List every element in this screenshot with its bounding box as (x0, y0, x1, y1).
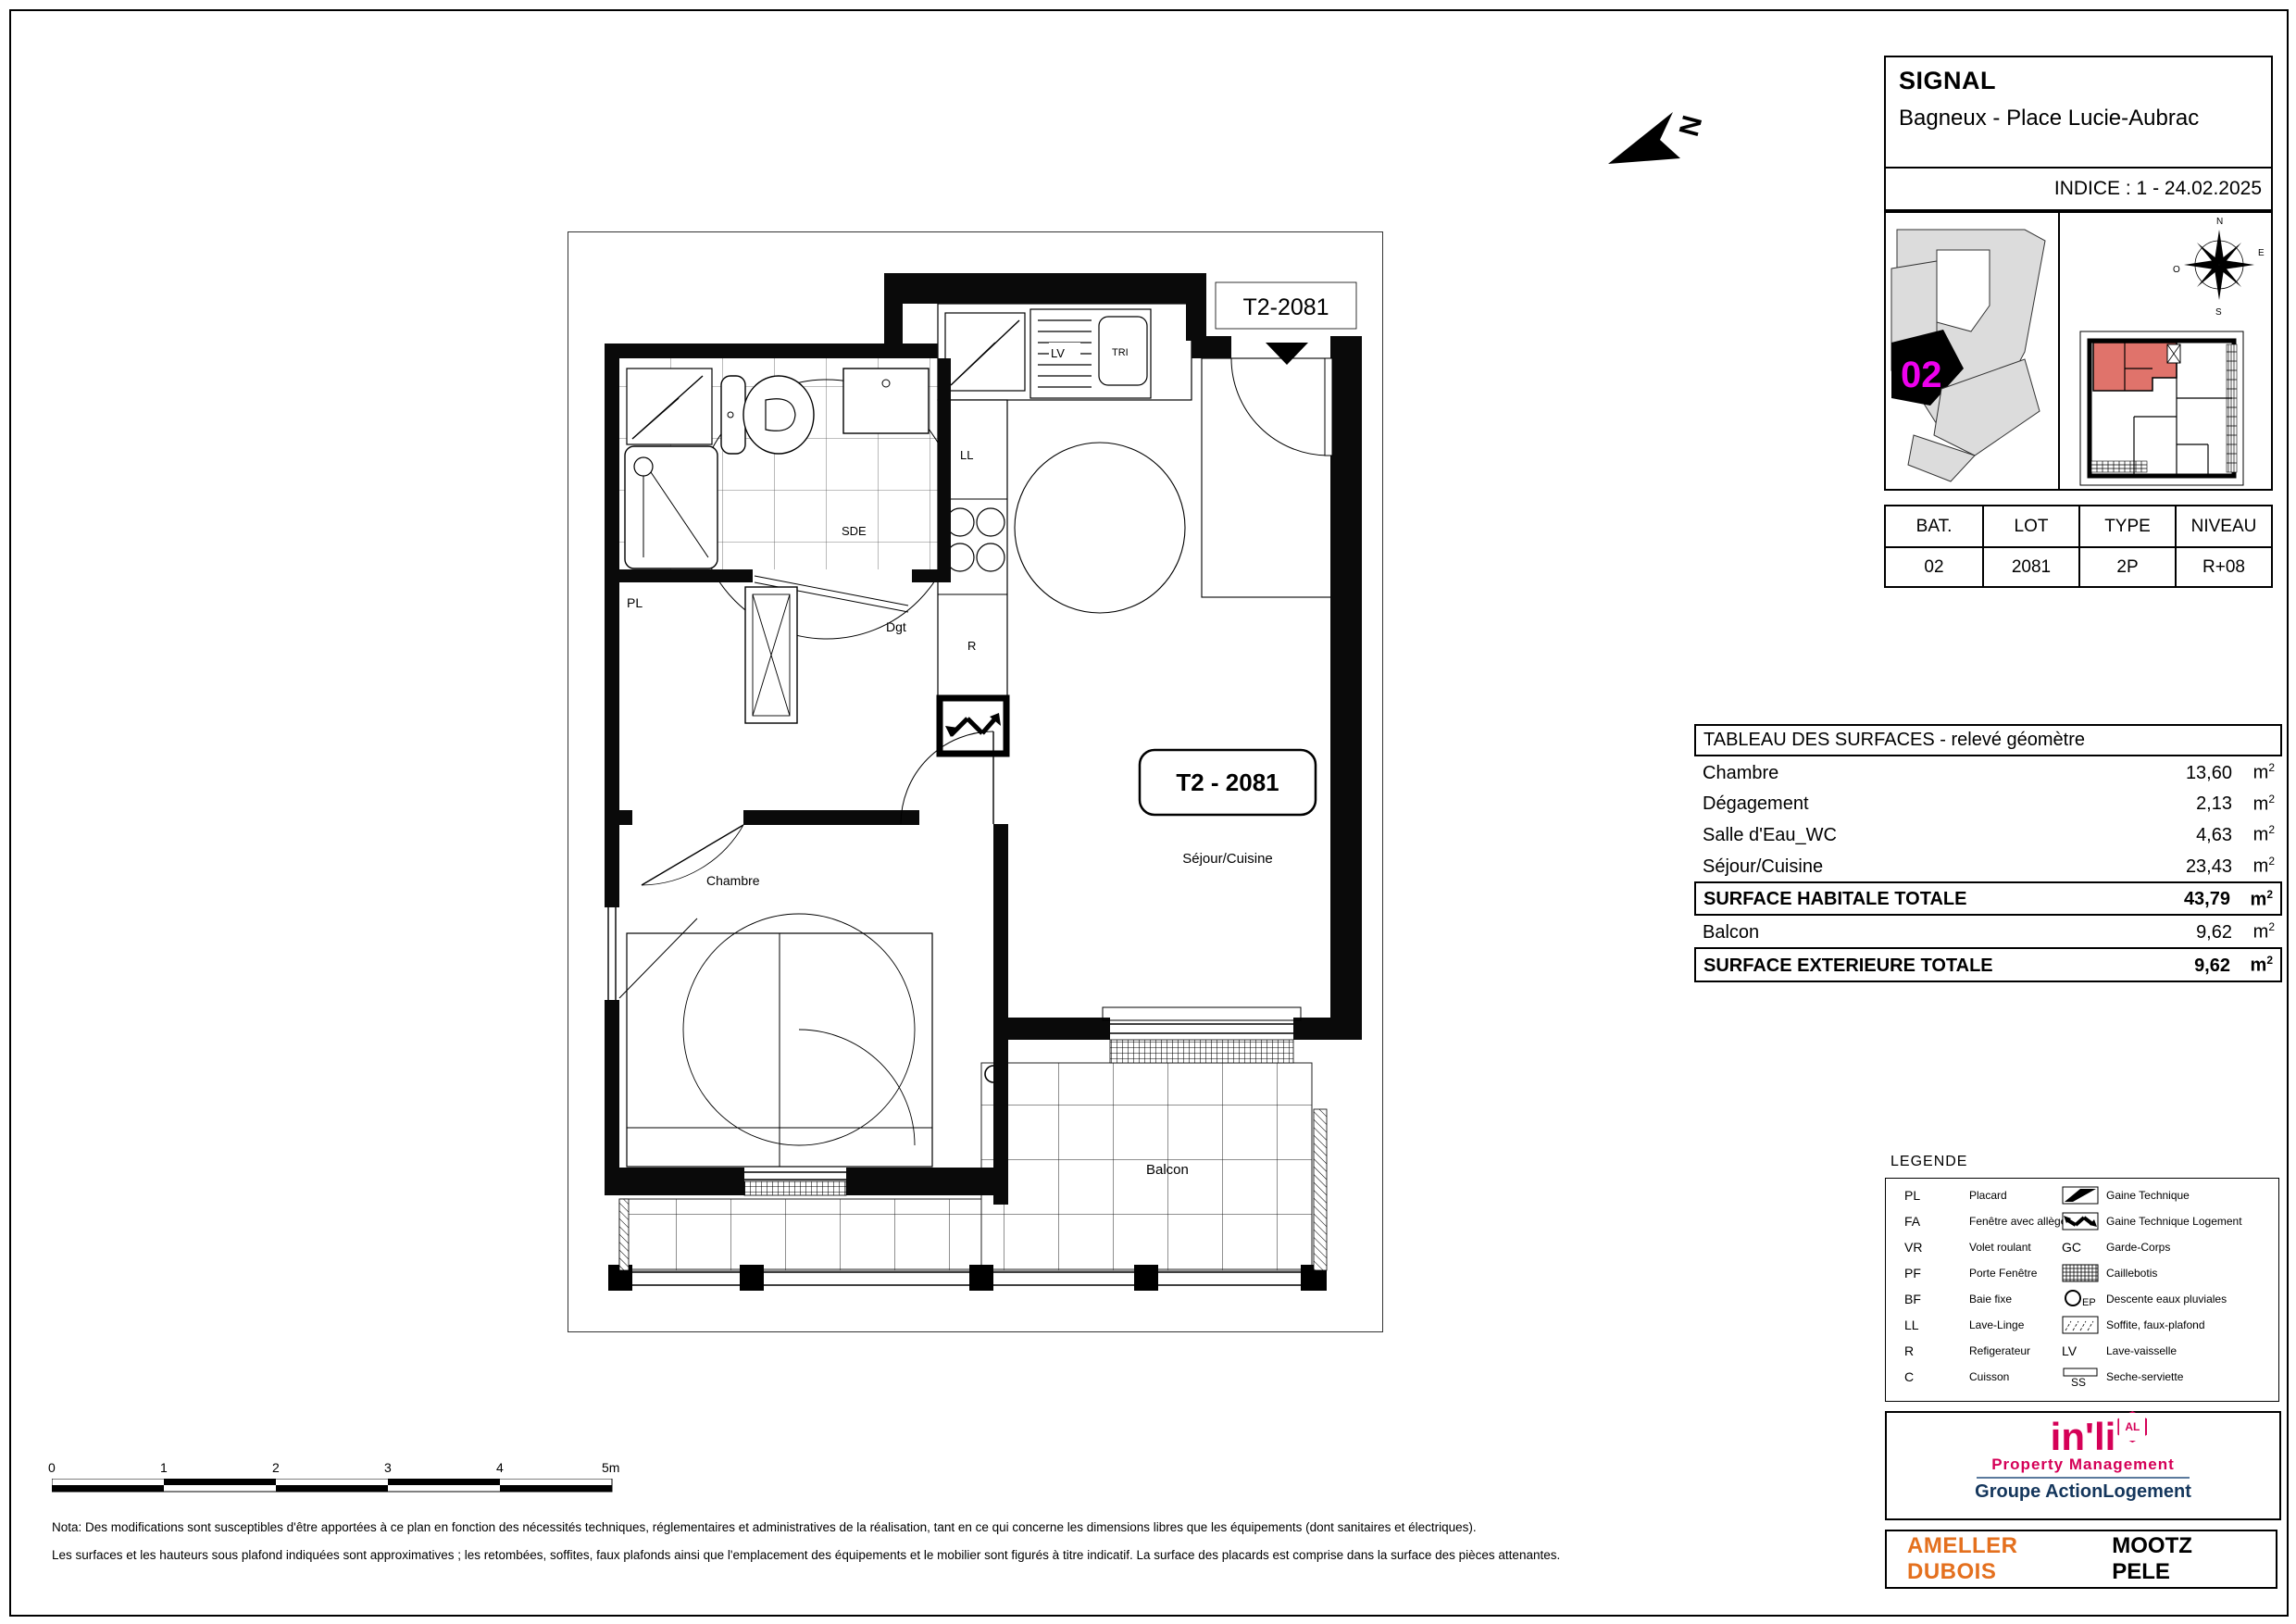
surface-table-title: TABLEAU DES SURFACES - relevé géomètre (1694, 724, 2282, 756)
gaine-technique-icon (2062, 1186, 2106, 1205)
inli-logo-box: in'liAL Property Management Groupe Actio… (1885, 1411, 2281, 1520)
revision-index: INDICE : 1 - 24.02.2025 (1886, 167, 2271, 209)
wardrobe-placard (745, 587, 797, 723)
legend-item: SS Seche-serviette (2062, 1366, 2183, 1388)
project-name: SIGNAL (1899, 67, 1996, 95)
building-number: 02 (1901, 355, 1942, 395)
ameller-dubois-logo: AMELLER DUBOIS (1907, 1533, 2112, 1585)
legend-title: LEGENDE (1890, 1154, 1967, 1170)
gaine-technique-logement-box (940, 698, 1006, 754)
room-label-chambre: Chambre (706, 873, 760, 888)
unit-table-value: 2P (2078, 546, 2175, 586)
legend-item: Gaine Technique (2062, 1184, 2190, 1206)
caillebotis-strip (1110, 1040, 1293, 1063)
round-table-icon (1015, 443, 1185, 613)
caillebotis-strip (744, 1181, 846, 1195)
scale-bar (52, 1479, 614, 1493)
balcony-separator (1314, 1109, 1327, 1270)
label-lv: LV (1051, 346, 1065, 360)
logo-divider (1977, 1477, 2190, 1479)
north-arrow-label: N (1674, 112, 1708, 139)
descente-eaux-pluviales-icon: EP (2062, 1289, 2106, 1309)
property-management-label: Property Management (1887, 1455, 2279, 1474)
table-row: Salle d'Eau_WC4,63m2 (1694, 818, 2282, 850)
garde-corps-abbr: GC (2062, 1240, 2106, 1255)
legend-item: EP Descente eaux pluviales (2062, 1288, 2227, 1310)
room-label-dgt: Dgt (886, 619, 906, 634)
legend-item: FAFenêtre avec allège (1904, 1210, 2066, 1232)
gaine-technique-logement-icon (2062, 1212, 2106, 1230)
al-badge-icon: AL (2117, 1411, 2147, 1443)
toilet-icon (721, 376, 814, 454)
svg-text:EP: EP (2082, 1297, 2096, 1308)
site-key-plan: 02 (1886, 213, 2060, 489)
legend-item: GC Garde-Corps (2062, 1236, 2170, 1258)
room-label-sde: SDE (842, 524, 867, 538)
seche-serviette-icon: SS (2062, 1367, 2106, 1387)
floorplan-sheet: N SIGNAL Bagneux - Place Lucie-Aubrac IN… (0, 0, 2296, 1624)
washbasin-icon (843, 369, 929, 433)
table-row-total: SURFACE HABITALE TOTALE43,79m2 (1694, 881, 2282, 917)
legend-item: RRefigerateur (1904, 1340, 2030, 1362)
unit-table-value: 02 (1886, 546, 1982, 586)
legend-item: VRVolet roulant (1904, 1236, 2031, 1258)
floor-plan-thumbnail (2080, 331, 2243, 485)
table-row: Balcon9,62m2 (1694, 916, 2282, 947)
legend-item: BFBaie fixe (1904, 1288, 2012, 1310)
project-location: Bagneux - Place Lucie-Aubrac (1899, 106, 2199, 131)
mootz-pele-logo: MOOTZ PELE (2112, 1533, 2255, 1585)
architects-box: AMELLER DUBOIS MOOTZ PELE (1885, 1530, 2277, 1589)
legend-item: PFPorte Fenêtre (1904, 1262, 2037, 1284)
room-label-pl: PL (627, 595, 643, 610)
unit-table-value: 2081 (1982, 546, 2078, 586)
kitchen-strip: LV TRI (938, 304, 1192, 400)
compass-s: S (2215, 307, 2222, 318)
room-label-balcon: Balcon (1146, 1162, 1189, 1178)
north-arrow-icon (1608, 112, 1680, 164)
shower-icon (625, 446, 717, 568)
unit-table-header: NIVEAU (2175, 506, 2271, 546)
unit-table-value: R+08 (2175, 546, 2271, 586)
bed-icon (627, 914, 932, 1167)
north-arrow: N (1606, 106, 1727, 181)
groupe-actionlogement-label: Groupe ActionLogement (1887, 1481, 2279, 1503)
compass-o: O (2173, 265, 2180, 275)
soffite-icon (2062, 1316, 2106, 1334)
legend-item: PLPlacard (1904, 1184, 2007, 1206)
unit-table-header: TYPE (2078, 506, 2175, 546)
unit-table-header: LOT (1982, 506, 2078, 546)
key-plans: 02 N E S O (1884, 211, 2273, 491)
nota-line-2: Les surfaces et les hauteurs sous plafon… (52, 1548, 1866, 1562)
legend-item: CCuisson (1904, 1366, 2009, 1388)
label-ll: LL (960, 448, 973, 462)
floor-plan-drawing: SDE LV TRI LL R (568, 231, 1381, 1330)
unit-label-box: T2 - 2081 (1140, 750, 1316, 815)
table-row: Séjour/Cuisine23,43m2 (1694, 850, 2282, 881)
compass-e: E (2258, 248, 2265, 258)
balcony-separator (619, 1199, 629, 1270)
inli-logo: in'liAL (2051, 1418, 2116, 1455)
legend-item: LLLave-Linge (1904, 1314, 2024, 1336)
label-tri: TRI (1112, 347, 1129, 358)
unit-number-box: T2 - 2081 (1176, 768, 1279, 796)
legend-item: Caillebotis (2062, 1262, 2157, 1284)
room-label-sejour: Séjour/Cuisine (1182, 851, 1273, 867)
compass-rose-icon: N E S O (2173, 217, 2265, 318)
label-r: R (967, 639, 976, 653)
unit-number-top: T2-2081 (1242, 294, 1329, 320)
legend-item: Gaine Technique Logement (2062, 1210, 2242, 1232)
surface-table: TABLEAU DES SURFACES - relevé géomètre C… (1694, 724, 2282, 982)
table-row: Chambre13,60m2 (1694, 756, 2282, 788)
legend-item: LV Lave-vaisselle (2062, 1340, 2177, 1362)
caillebotis-icon (2062, 1264, 2106, 1282)
legend-item: Soffite, faux-plafond (2062, 1314, 2205, 1336)
entry-hall-rect (1202, 358, 1332, 597)
floor-key-plan: N E S O (2060, 213, 2271, 489)
unit-table-header: BAT. (1886, 506, 1982, 546)
nota-line-1: Nota: Des modifications sont susceptible… (52, 1520, 1866, 1534)
compass-n: N (2216, 217, 2223, 227)
legend: PLPlacard FAFenêtre avec allège VRVolet … (1885, 1178, 2279, 1402)
title-block: SIGNAL Bagneux - Place Lucie-Aubrac INDI… (1884, 56, 2273, 211)
table-row-total: SURFACE EXTERIEURE TOTALE9,62m2 (1694, 947, 2282, 982)
unit-info-table: BAT. LOT TYPE NIVEAU 02 2081 2P R+08 (1884, 505, 2273, 588)
table-row: Dégagement2,13m2 (1694, 788, 2282, 819)
lave-vaisselle-abbr: LV (2062, 1343, 2106, 1358)
svg-text:SS: SS (2071, 1376, 2086, 1387)
